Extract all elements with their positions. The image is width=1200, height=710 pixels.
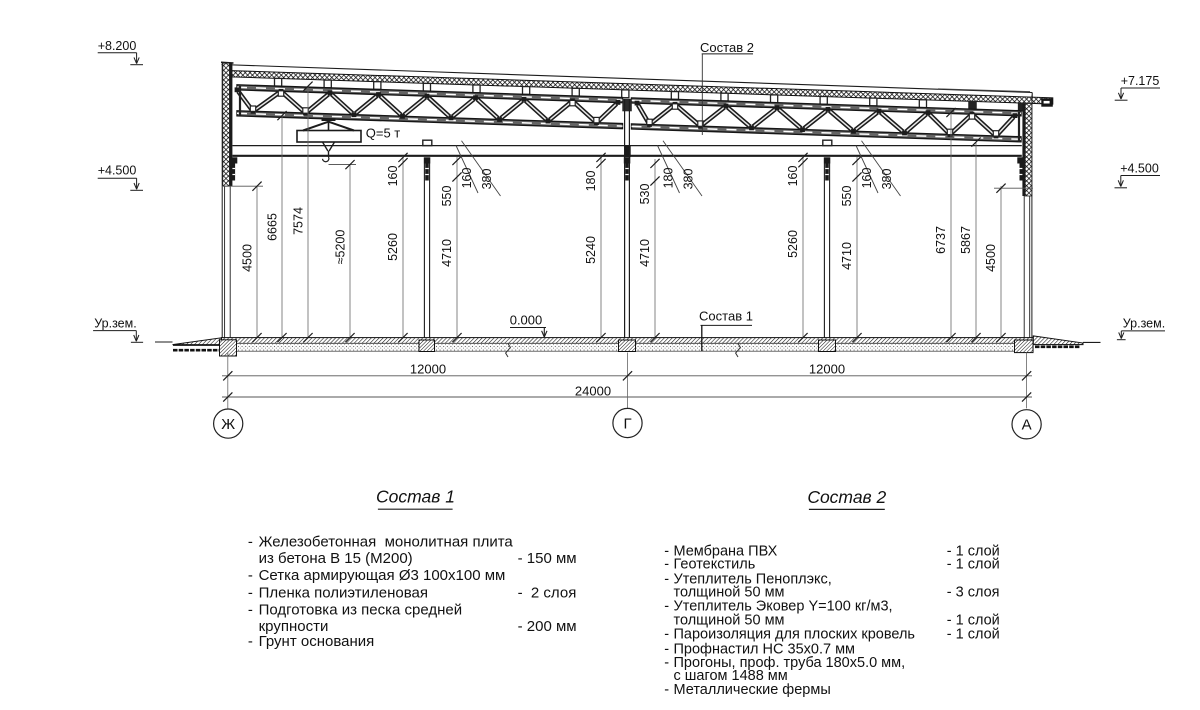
svg-text:-: - bbox=[248, 602, 253, 619]
svg-text:Сетка армирующая Ø3 100х100 мм: Сетка армирующая Ø3 100х100 мм bbox=[259, 567, 506, 584]
svg-text:6737: 6737 bbox=[934, 226, 948, 254]
svg-text:5260: 5260 bbox=[386, 233, 400, 261]
svg-text:4710: 4710 bbox=[638, 239, 652, 267]
svg-text:Железобетонная монолитная пли: Железобетонная монолитная плита bbox=[259, 534, 514, 551]
svg-text:Грунт основания: Грунт основания bbox=[259, 633, 375, 650]
svg-text:+4.500: +4.500 bbox=[1120, 162, 1159, 176]
svg-text:7574: 7574 bbox=[292, 207, 306, 235]
svg-text:4500: 4500 bbox=[241, 244, 255, 272]
svg-text:6665: 6665 bbox=[266, 213, 280, 241]
svg-text:Подготовка из песка средней: Подготовка из песка средней bbox=[259, 602, 463, 619]
svg-text:4710: 4710 bbox=[840, 242, 854, 270]
svg-text:Ур.зем.: Ур.зем. bbox=[94, 316, 136, 330]
svg-text:-: - bbox=[664, 626, 669, 642]
svg-text:-: - bbox=[664, 655, 669, 671]
svg-text:5867: 5867 bbox=[959, 226, 973, 254]
svg-text:-: - bbox=[664, 572, 669, 588]
svg-text:Состав 1: Состав 1 bbox=[376, 487, 455, 507]
svg-text:из бетона В 15 (М200): из бетона В 15 (М200) bbox=[259, 550, 413, 567]
svg-text:- 1 слой: - 1 слой bbox=[947, 626, 1000, 642]
svg-text:- 1 слой: - 1 слой bbox=[947, 557, 1000, 573]
svg-text:4710: 4710 bbox=[440, 239, 454, 267]
svg-text:160: 160 bbox=[786, 166, 800, 187]
svg-text:-: - bbox=[664, 682, 669, 698]
svg-text:Ур.зем.: Ур.зем. bbox=[1123, 317, 1165, 331]
svg-text:5240: 5240 bbox=[584, 236, 598, 264]
svg-text:550: 550 bbox=[440, 186, 454, 207]
svg-text:160: 160 bbox=[860, 168, 874, 189]
svg-text:380: 380 bbox=[682, 169, 696, 190]
svg-text:180: 180 bbox=[662, 168, 676, 189]
svg-text:А: А bbox=[1022, 417, 1032, 434]
svg-text:+8.200: +8.200 bbox=[98, 39, 137, 53]
svg-text:Металлические фермы: Металлические фермы bbox=[674, 682, 831, 698]
svg-text:-: - bbox=[248, 534, 253, 551]
svg-text:-: - bbox=[664, 557, 669, 573]
svg-text:-: - bbox=[248, 567, 253, 584]
svg-text:+4.500: +4.500 bbox=[98, 164, 137, 178]
svg-text:≈5200: ≈5200 bbox=[334, 230, 348, 265]
svg-text:Геотекстиль: Геотекстиль bbox=[674, 557, 756, 573]
svg-text:160: 160 bbox=[386, 166, 400, 187]
svg-text:24000: 24000 bbox=[575, 384, 611, 399]
svg-text:- 200 мм: - 200 мм bbox=[518, 618, 577, 635]
svg-text:- 3 слоя: - 3 слоя bbox=[947, 585, 1000, 601]
svg-text:160: 160 bbox=[460, 168, 474, 189]
svg-text:- 2 слоя: - 2 слоя bbox=[518, 584, 577, 601]
svg-text:530: 530 bbox=[638, 184, 652, 205]
svg-text:+7.175: +7.175 bbox=[1121, 74, 1160, 88]
svg-text:Состав 2: Состав 2 bbox=[700, 40, 754, 55]
svg-text:4500: 4500 bbox=[984, 244, 998, 272]
svg-text:Пароизоляция для плоских крове: Пароизоляция для плоских кровель bbox=[674, 626, 915, 642]
svg-text:5260: 5260 bbox=[786, 230, 800, 258]
svg-text:180: 180 bbox=[584, 171, 598, 192]
svg-text:0.000: 0.000 bbox=[510, 312, 543, 327]
svg-text:Состав 2: Состав 2 bbox=[807, 487, 886, 507]
svg-text:12000: 12000 bbox=[410, 362, 446, 377]
svg-text:550: 550 bbox=[840, 186, 854, 207]
svg-text:380: 380 bbox=[480, 169, 494, 190]
svg-text:Г: Г bbox=[623, 415, 631, 432]
svg-text:Ж: Ж bbox=[221, 416, 235, 433]
svg-text:-: - bbox=[248, 584, 253, 601]
svg-text:- 150 мм: - 150 мм bbox=[518, 550, 577, 567]
svg-text:380: 380 bbox=[880, 169, 894, 190]
svg-text:Пленка полиэтиленовая: Пленка полиэтиленовая bbox=[259, 584, 428, 601]
svg-text:-: - bbox=[248, 633, 253, 650]
svg-text:12000: 12000 bbox=[809, 362, 845, 377]
svg-text:Q=5 т: Q=5 т bbox=[366, 125, 401, 140]
svg-text:-: - bbox=[664, 599, 669, 615]
svg-text:Состав 1: Состав 1 bbox=[699, 309, 753, 324]
